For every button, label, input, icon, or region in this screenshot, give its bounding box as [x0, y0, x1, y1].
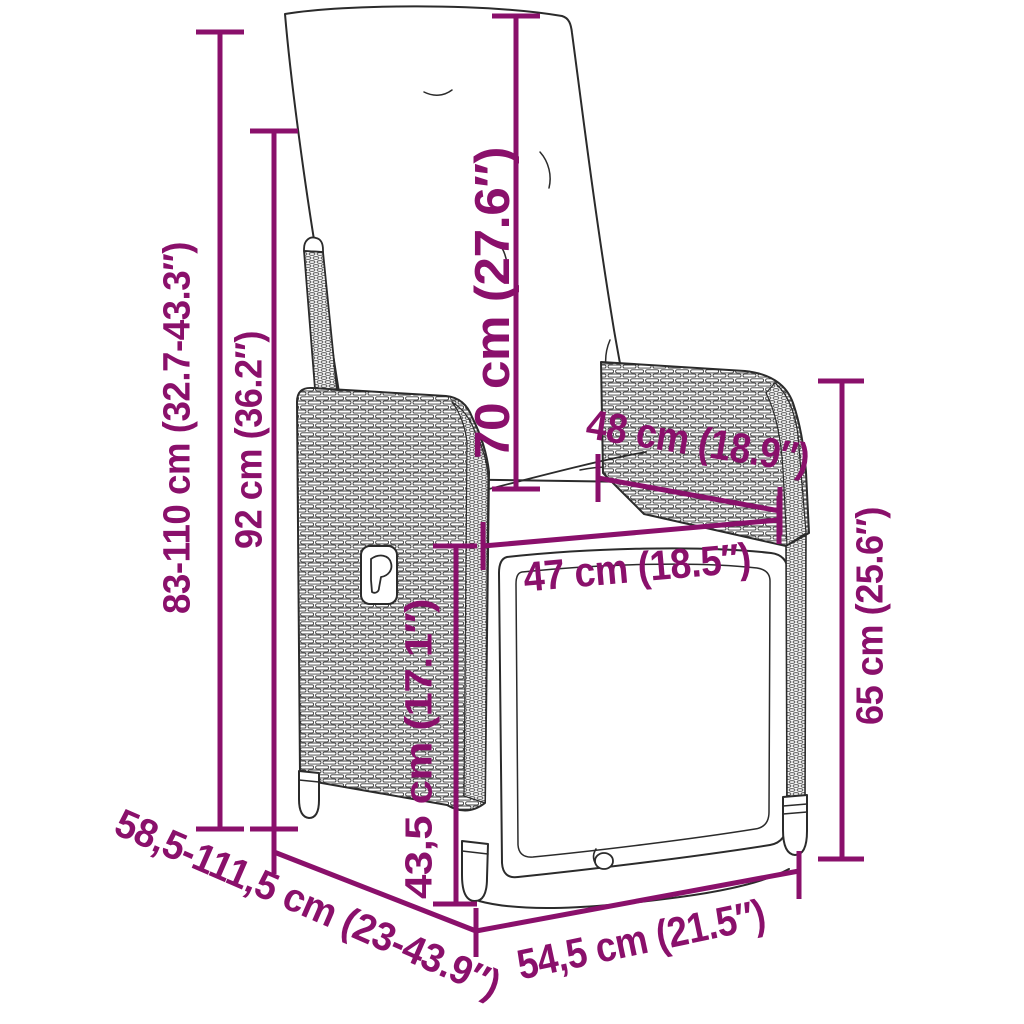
label-base-width: 54,5 cm (21.5″) — [513, 890, 769, 988]
label-seat-height: 43,5 cm (17.1″) — [398, 599, 440, 899]
diagram-canvas: 83-110 cm (32.7-43.3″) 92 cm (36.2″) 70 … — [0, 0, 1024, 1024]
caster-wheel — [595, 853, 613, 869]
product-dimension-diagram: 83-110 cm (32.7-43.3″) 92 cm (36.2″) 70 … — [0, 0, 1024, 1024]
label-backrest-height: 92 cm (36.2″) — [228, 331, 270, 549]
label-armrest-height: 65 cm (25.6″) — [849, 507, 891, 725]
rear-left-leg — [299, 771, 319, 818]
back-frame-cap — [304, 237, 323, 252]
right-front-post — [786, 535, 806, 798]
label-total-height: 83-110 cm (32.7-43.3″) — [156, 242, 198, 614]
label-back-cushion-length: 70 cm (27.6″) — [466, 147, 520, 459]
front-left-leg — [462, 841, 488, 901]
